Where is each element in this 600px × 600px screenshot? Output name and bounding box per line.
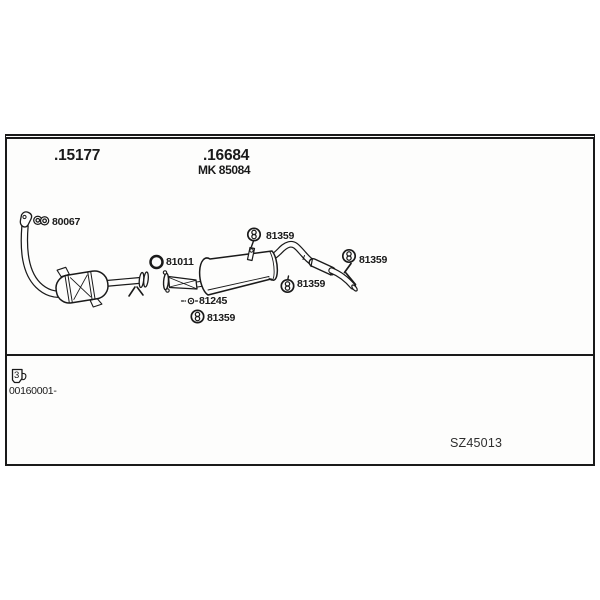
bolt-icon (182, 298, 200, 303)
flex-joint (163, 271, 197, 292)
part-label-hanger-top: 81359 (266, 231, 294, 242)
exhaust-diagram (0, 0, 600, 600)
serial-range: 00160001- (9, 386, 57, 397)
rear-muffler (200, 248, 278, 296)
front-section-number: .15177 (54, 148, 100, 164)
part-label-front-flange-gasket: 80067 (52, 217, 80, 228)
part-label-hanger-tail: 81359 (359, 255, 387, 266)
rubber-hanger-icon (248, 228, 260, 240)
part-label-hanger-bottom: 81359 (207, 313, 235, 324)
catalog-page: .15177 .16684 MK 85084 80067 81011 81359… (0, 0, 600, 600)
rubber-hanger-icon (281, 280, 293, 292)
ring-gasket-icon (151, 256, 163, 268)
part-label-hanger-middle: 81359 (297, 279, 325, 290)
rear-section-number: .16684 (203, 148, 249, 164)
rear-section-alt-number: MK 85084 (198, 164, 250, 176)
rubber-hanger-icon (191, 310, 203, 322)
tailpipe-front-section (272, 244, 313, 262)
rubber-hanger-icon (343, 250, 355, 262)
part-label-ring-gasket: 81011 (166, 257, 194, 268)
drawing-code: SZ45013 (450, 437, 502, 450)
front-flange (20, 212, 31, 227)
front-muffler (53, 261, 111, 312)
two-hole-gasket-icon (34, 216, 49, 225)
part-label-mounting-bolt: 81245 (199, 296, 227, 307)
tailpipe-end (332, 264, 359, 292)
note-number: 3 (14, 371, 19, 381)
